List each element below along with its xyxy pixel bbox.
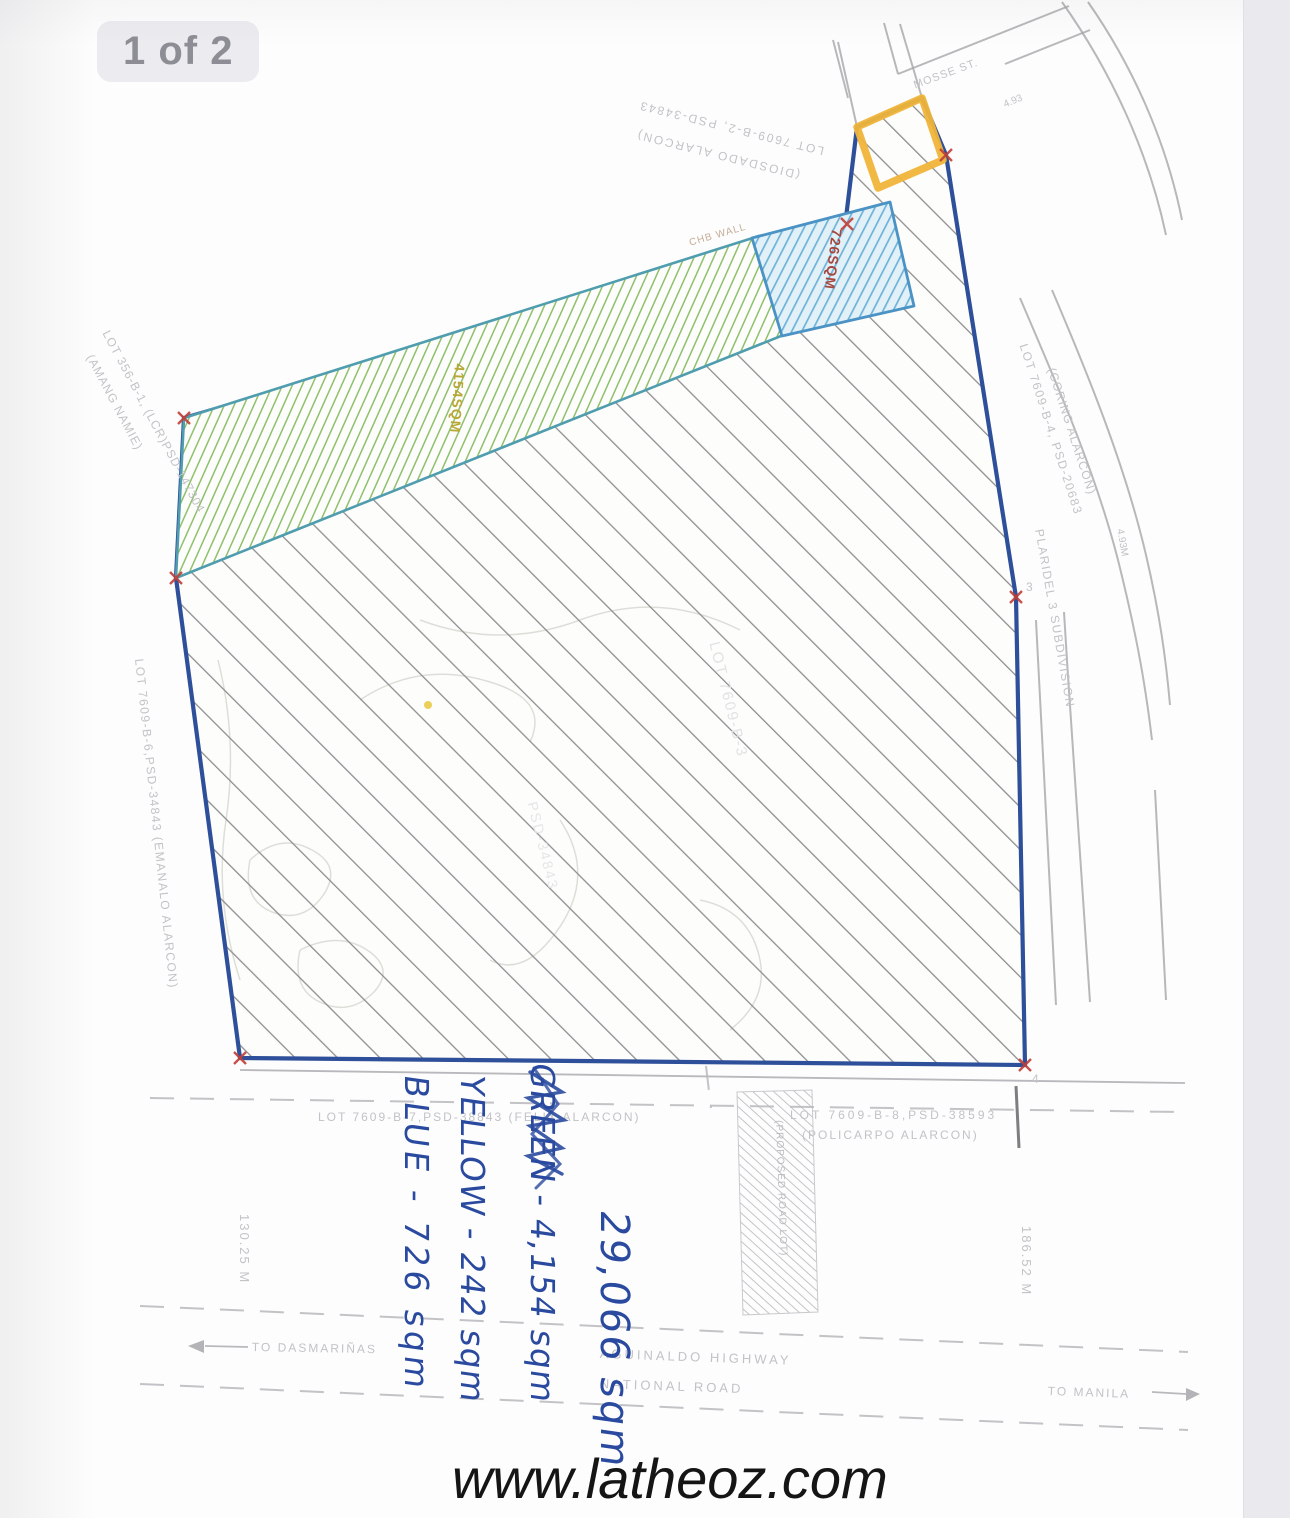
plan-label: 3 (1026, 580, 1033, 594)
survey-plan (0, 0, 1290, 1518)
plan-label: 130.25 M (237, 1214, 252, 1284)
plan-label: TO DASMARIÑAS (252, 1340, 377, 1356)
ink-scribble (522, 1064, 570, 1196)
photo-viewer-page: 726SQM4154SQMLOT 7609-B-2, PSD-34843(DIO… (0, 0, 1290, 1518)
viewer-background-strip (1243, 0, 1290, 1518)
plan-label: LOT 7609-B-8,PSD-38593 (790, 1108, 997, 1122)
plan-label: 4 (1032, 1072, 1039, 1086)
note-total-area: 29,066 sqm (591, 1208, 637, 1472)
page-indicator-badge: 1 of 2 (97, 21, 259, 82)
plan-label: TO MANILA (1048, 1384, 1131, 1401)
note-blue-area: BLUE - 726 sqm (397, 1073, 436, 1396)
plan-label: 186.52 M (1019, 1226, 1034, 1296)
note-yellow-area: YELLOW - 242 sqm (453, 1073, 492, 1406)
plan-label: (POLICARPO ALARCON) (802, 1128, 979, 1142)
highway-lines (140, 1066, 1200, 1430)
yellow-dot (424, 701, 432, 709)
watermark-text: www.latheoz.com (452, 1446, 888, 1511)
